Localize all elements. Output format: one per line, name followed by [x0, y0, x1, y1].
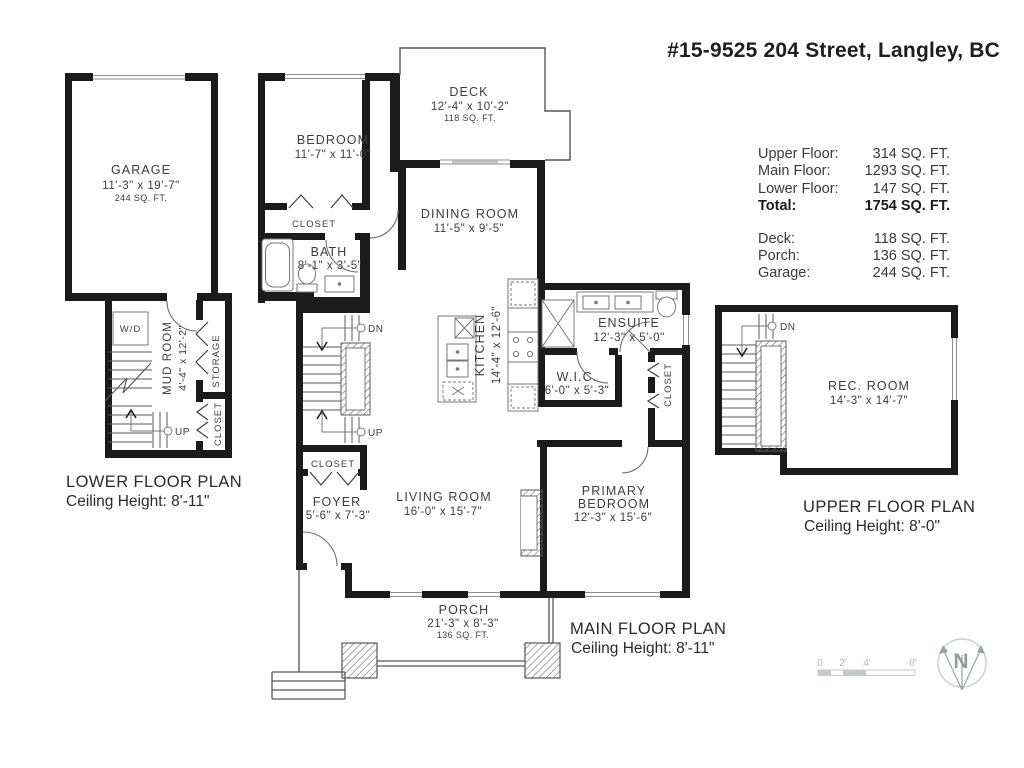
dn-label-upper: DN [780, 322, 795, 333]
living-room-dims: 16'-0" x 15'-7" [404, 506, 482, 518]
dining-room-dims: 11'-5" x 9'-5" [434, 223, 504, 235]
room-labels: GARAGE 11'-3" x 19'-7" 244 SQ. FT. BEDRO… [102, 85, 910, 640]
primary-bedroom-label-2: BEDROOM [578, 497, 650, 511]
porch-area: 136 SQ. FT. [437, 630, 489, 640]
deck-label: DECK [449, 85, 488, 99]
scale-bar: 0 2' 4' 8' [817, 658, 917, 676]
ensuite-label: ENSUITE [598, 316, 660, 330]
lower-closet-label: CLOSET [213, 402, 224, 446]
bedroom-closet-label: CLOSET [292, 219, 336, 230]
garage-label: GARAGE [111, 163, 171, 177]
porch-dims: 21'-3" x 8'-3" [427, 618, 498, 630]
north-letter: N [953, 650, 968, 673]
main-plan-title: MAIN FLOOR PLAN [570, 620, 726, 638]
dn-label-main: DN [368, 324, 383, 335]
mud-room-label: MUD ROOM [162, 321, 174, 395]
north-arrow-icon: N [938, 639, 986, 690]
wd-label: W/D [120, 324, 141, 335]
bath-label: BATH [311, 245, 348, 259]
kitchen-dims: 14'-4" x 12'-6" [491, 306, 503, 384]
primary-bedroom-label-1: PRIMARY [582, 484, 646, 498]
main-plan-ceiling: Ceiling Height: 8'-11" [571, 640, 714, 657]
bedroom-dims: 11'-7" x 11'-0" [295, 149, 372, 161]
porch-outline [272, 570, 553, 699]
deck-dims: 12'-4" x 10'-2" [431, 101, 509, 113]
primary-closet-label: CLOSET [663, 363, 674, 407]
primary-bedroom-dims: 12'-3" x 15'-6" [574, 512, 652, 524]
storage-label: STORAGE [211, 334, 222, 387]
up-label-lower: UP [175, 427, 190, 438]
wic-label: W.I.C. [557, 370, 598, 384]
stairs-upper [722, 314, 786, 451]
rec-room-label: REC. ROOM [828, 379, 910, 393]
porch-label: PORCH [439, 603, 490, 617]
stairs-main [303, 315, 370, 443]
foyer-dims: 5'-6" x 7'-3" [306, 510, 370, 522]
dining-room-label: DINING ROOM [421, 207, 519, 221]
kitchen-label: KITCHEN [473, 314, 487, 377]
foyer-closet-label: CLOSET [311, 459, 355, 470]
wic-dims: 6'-0" x 5'-3" [545, 385, 609, 397]
scale-tick-0: 0 [817, 658, 823, 669]
garage-dims: 11'-3" x 19'-7" [102, 180, 179, 192]
scale-tick-8: 8' [909, 658, 917, 669]
scale-tick-2: 2' [839, 658, 847, 669]
lower-plan-title: LOWER FLOOR PLAN [66, 473, 242, 491]
lower-plan-ceiling: Ceiling Height: 8'-11" [66, 493, 209, 510]
bath-dims: 8'-1" x 3'-5" [298, 260, 362, 272]
up-label-main: UP [368, 428, 383, 439]
ensuite-dims: 12'-3" x 5'-0" [593, 332, 664, 344]
foyer-label: FOYER [313, 495, 362, 509]
mud-room-dims: 4'-4" x 12'-2" [177, 325, 189, 391]
floor-plan-page: #15-9525 204 Street, Langley, BC Upper F… [0, 0, 1024, 768]
garage-area: 244 SQ. FT. [115, 193, 167, 203]
living-room-label: LIVING ROOM [396, 490, 491, 504]
deck-area: 118 SQ. FT. [444, 113, 496, 123]
bedroom-label: BEDROOM [297, 133, 369, 147]
floor-plan-drawing: GARAGE 11'-3" x 19'-7" 244 SQ. FT. BEDRO… [0, 0, 1024, 768]
upper-plan-ceiling: Ceiling Height: 8'-0" [804, 518, 940, 535]
rec-room-dims: 14'-3" x 14'-7" [830, 395, 908, 407]
scale-tick-4: 4' [863, 658, 871, 669]
upper-plan-title: UPPER FLOOR PLAN [803, 498, 975, 516]
